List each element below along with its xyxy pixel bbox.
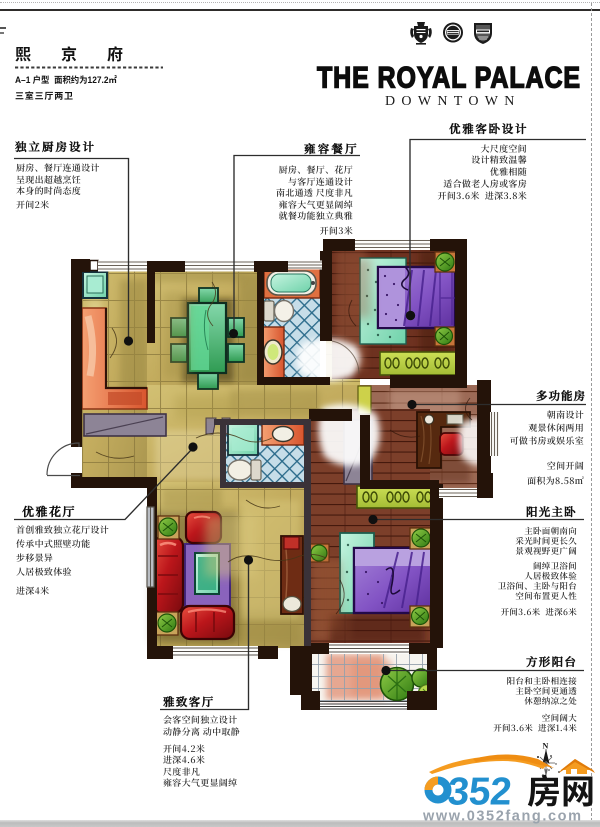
- svg-text:352: 352: [446, 771, 513, 814]
- svg-text:房网: 房网: [527, 765, 595, 814]
- svg-text:www.0352fang.com: www.0352fang.com: [422, 809, 583, 825]
